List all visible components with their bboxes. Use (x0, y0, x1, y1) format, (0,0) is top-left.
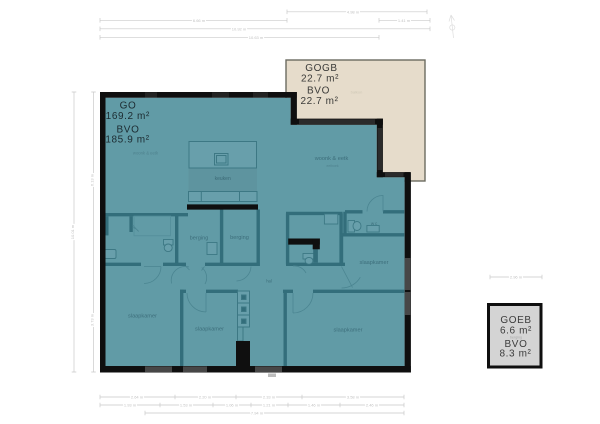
svg-text:slaapkamer: slaapkamer (360, 260, 389, 266)
svg-text:berging: berging (190, 236, 209, 242)
svg-text:1.46 m: 1.46 m (308, 402, 321, 407)
svg-text:2.96 m: 2.96 m (510, 275, 523, 280)
svg-text:10.01 m: 10.01 m (70, 224, 75, 239)
svg-text:169.2 m²: 169.2 m² (106, 111, 150, 122)
svg-text:woonk & eetk: woonk & eetk (314, 156, 349, 162)
svg-text:1.93 m: 1.93 m (124, 402, 137, 407)
svg-text:185.9 m²: 185.9 m² (105, 135, 149, 146)
svg-text:2.33 m: 2.33 m (263, 394, 276, 399)
svg-text:4.98 m: 4.98 m (347, 9, 360, 14)
svg-text:hal: hal (266, 279, 272, 284)
svg-text:1.41 m: 1.41 m (398, 18, 411, 23)
svg-text:GOEB: GOEB (500, 315, 531, 326)
svg-text:keuken: keuken (215, 176, 231, 182)
svg-text:3.73 m: 3.73 m (90, 313, 95, 326)
svg-text:10.63 m: 10.63 m (249, 35, 264, 40)
svg-text:22.7 m²: 22.7 m² (300, 96, 338, 107)
svg-text:10.92 m: 10.92 m (232, 26, 247, 31)
svg-text:2.46 m: 2.46 m (366, 402, 379, 407)
svg-text:balkon: balkon (351, 90, 363, 95)
svg-text:BVO: BVO (307, 86, 330, 97)
svg-text:7.94 m: 7.94 m (251, 410, 264, 415)
svg-text:slaapkamer: slaapkamer (128, 314, 157, 320)
svg-text:berging: berging (230, 235, 249, 241)
svg-text:3.58 m: 3.58 m (347, 394, 360, 399)
svg-text:GO: GO (120, 101, 137, 112)
svg-text:1.53 m: 1.53 m (180, 402, 193, 407)
svg-text:8.3 m²: 8.3 m² (500, 349, 532, 360)
svg-text:6.13 m: 6.13 m (90, 173, 95, 186)
svg-text:6.66 m: 6.66 m (193, 18, 206, 23)
svg-text:slaapkamer: slaapkamer (334, 328, 363, 334)
svg-text:2.20 m: 2.20 m (199, 394, 212, 399)
svg-text:wc: wc (371, 221, 378, 226)
svg-text:berging: berging (510, 336, 522, 340)
svg-text:GOGB: GOGB (305, 63, 337, 74)
svg-text:22.7 m²: 22.7 m² (301, 74, 339, 85)
svg-text:2.64 m: 2.64 m (131, 394, 144, 399)
svg-text:slaapkamer: slaapkamer (195, 327, 224, 333)
svg-text:1.21 m: 1.21 m (263, 402, 276, 407)
svg-text:1.06 m: 1.06 m (226, 402, 239, 407)
svg-text:eethoek: eethoek (326, 164, 338, 168)
svg-text:woonk & eetk: woonk & eetk (133, 151, 159, 156)
